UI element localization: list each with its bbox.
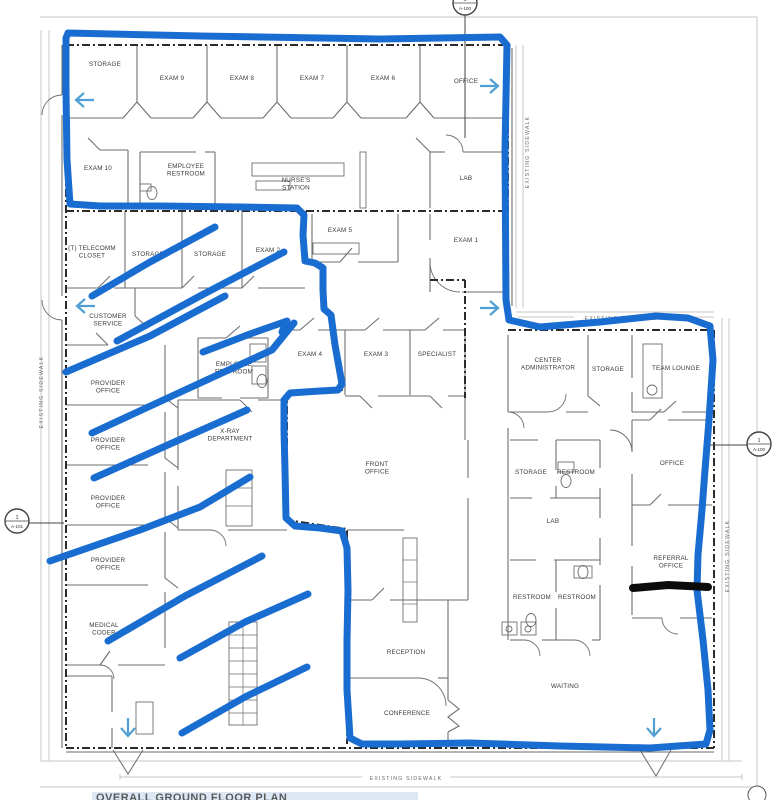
sheet-frame-lines <box>40 17 757 787</box>
wall-line <box>333 102 347 118</box>
marker-annotation-layer <box>50 33 713 748</box>
callout-sheet: A-101 <box>11 524 24 529</box>
sidewalk-labels-layer: EXISTING SIDEWALKEXISTING SIDEWALKEXISTI… <box>39 116 731 782</box>
marker-hatch-stroke <box>66 296 225 372</box>
callout-sheet: A-100 <box>459 6 472 11</box>
sidewalk-label: EXISTING SIDEWALK <box>525 116 531 189</box>
door-swing-arc <box>548 394 566 412</box>
room-label: REFERRALOFFICE <box>653 555 688 570</box>
callout-number: 1 <box>15 515 18 521</box>
wall-line <box>360 396 372 408</box>
marker-black-line <box>633 585 708 588</box>
sidewalk-label: EXISTING SIDEWALK <box>725 520 731 593</box>
door-swing-arc <box>574 640 590 656</box>
room-label: CONFERENCE <box>384 710 430 717</box>
toilet-icon <box>526 614 536 627</box>
wall-line <box>300 318 314 330</box>
wall-line <box>193 102 207 118</box>
marker-hatch-stroke <box>50 477 250 561</box>
toilet-icon <box>578 566 588 579</box>
room-label: EXAM 3 <box>364 351 389 358</box>
fixture <box>252 163 344 176</box>
sink-icon <box>647 385 657 395</box>
door-zigzag <box>448 700 459 732</box>
wall-line <box>100 651 110 665</box>
callout-sheet: A-100 <box>753 447 766 452</box>
room-label: EXAM 4 <box>298 351 323 358</box>
toilet-icon <box>561 475 571 488</box>
wall-line <box>347 102 361 118</box>
wall-line <box>88 138 100 150</box>
wall-line <box>650 494 661 505</box>
room-label: STORAGE <box>592 366 624 373</box>
room-label: EXAM 10 <box>84 165 112 172</box>
fixture <box>521 622 536 635</box>
room-label: RECEPTION <box>387 649 426 656</box>
marker-perimeter-path <box>66 33 713 748</box>
floor-plan-drawing: STORAGEEXAM 9EXAM 8EXAM 7EXAM 6OFFICEEXA… <box>0 0 772 800</box>
sink-icon <box>506 626 512 632</box>
floor-plan-sheet: STORAGEEXAM 9EXAM 8EXAM 7EXAM 6OFFICEEXA… <box>0 0 772 800</box>
room-label: RESTROOM <box>513 594 551 601</box>
door-swing-arc <box>524 640 540 656</box>
room-label: OFFICE <box>454 78 478 85</box>
sink-icon <box>525 626 531 632</box>
room-label: STORAGE <box>515 469 547 476</box>
fixture <box>574 566 592 578</box>
room-label: LAB <box>460 175 473 182</box>
wall-line <box>406 102 420 118</box>
wall-line <box>165 458 178 468</box>
existing-wall-dashed <box>287 211 347 744</box>
entry-funnel <box>640 750 671 776</box>
room-label: CUSTOMERSERVICE <box>89 313 127 328</box>
room-label: RESTROOM <box>557 469 595 476</box>
door-swing-arc <box>610 430 632 452</box>
door-swing-arc <box>210 530 226 546</box>
fixture <box>403 538 417 622</box>
wall-line <box>650 409 661 420</box>
room-label: EXAM 5 <box>328 227 353 234</box>
wall-line <box>588 396 600 406</box>
door-swing-arc <box>42 300 62 320</box>
callout-number: 1 <box>757 438 760 444</box>
wall-line <box>96 333 108 345</box>
wall-line <box>416 138 430 152</box>
wall-line <box>664 401 676 412</box>
door-swing-arc <box>430 262 460 292</box>
room-label: OFFICE <box>660 460 684 467</box>
sidewalk-label: EXISTING SIDEWALK <box>370 776 443 782</box>
door-swing-arc <box>662 618 678 634</box>
room-label: EXAM 6 <box>371 75 396 82</box>
wall-line <box>420 102 434 118</box>
callout-number: 1 <box>463 0 466 3</box>
wall-line <box>242 276 254 288</box>
room-label: EXAM 7 <box>300 75 325 82</box>
fixture <box>360 152 366 208</box>
room-label: EXAM 8 <box>230 75 255 82</box>
door-swing-arc <box>508 412 524 428</box>
sheet-title: OVERALL GROUND FLOOR PLAN <box>96 792 287 800</box>
room-label: FRONTOFFICE <box>365 461 389 476</box>
sidewalk-label: EXISTING SIDEWALK <box>39 356 45 429</box>
door-swing-arc <box>42 95 62 115</box>
fixture <box>136 702 153 734</box>
wall-line <box>263 102 277 118</box>
wall-line <box>123 102 137 118</box>
marker-hatch-stroke <box>92 227 215 296</box>
fixture <box>502 622 517 635</box>
room-label: PROVIDEROFFICE <box>91 380 126 395</box>
wall-line <box>165 578 178 588</box>
toilet-icon <box>147 187 157 200</box>
wall-line <box>365 318 379 330</box>
room-label: TEAM LOUNGE <box>652 365 700 372</box>
room-label: EXAM 9 <box>160 75 185 82</box>
room-label: SPECIALIST <box>418 351 456 358</box>
entry-funnel <box>113 750 143 774</box>
door-swing-arc <box>418 678 446 706</box>
north-arrow-icon <box>748 786 766 800</box>
room-label: PROVIDEROFFICE <box>91 557 126 572</box>
room-label: EMPLOYEERESTROOM <box>167 163 205 178</box>
wall-line <box>207 102 221 118</box>
wall-line <box>340 248 352 262</box>
wall-line <box>182 276 194 288</box>
wall-line <box>137 102 151 118</box>
room-label: LAB <box>547 518 560 525</box>
door-swing-arc <box>446 135 463 152</box>
room-label: NURSE'SSTATION <box>282 177 311 192</box>
room-label: CENTERADMINISTRATOR <box>521 357 575 372</box>
room-label: RESTROOM <box>558 594 596 601</box>
room-label: EXAM 1 <box>454 237 479 244</box>
marker-hatch-stroke <box>180 594 308 658</box>
room-label: STORAGE <box>194 251 226 258</box>
room-label: PROVIDEROFFICE <box>91 437 126 452</box>
toilet-icon <box>257 375 267 388</box>
plan-arrows-layer <box>76 79 661 736</box>
room-label: X-RAYDEPARTMENT <box>208 428 253 443</box>
room-label: STORAGE <box>89 61 121 68</box>
room-label: PROVIDEROFFICE <box>91 495 126 510</box>
room-labels-layer: STORAGEEXAM 9EXAM 8EXAM 7EXAM 6OFFICEEXA… <box>68 61 700 717</box>
wall-line <box>425 318 439 330</box>
room-label: (T) TELECOMMCLOSET <box>68 245 116 260</box>
wall-line <box>430 396 442 408</box>
marker-hatch-stroke <box>182 667 307 733</box>
fixtures-layer <box>136 152 662 734</box>
wall-line <box>372 588 384 600</box>
wall-line <box>277 102 291 118</box>
room-label: WAITING <box>551 683 579 690</box>
